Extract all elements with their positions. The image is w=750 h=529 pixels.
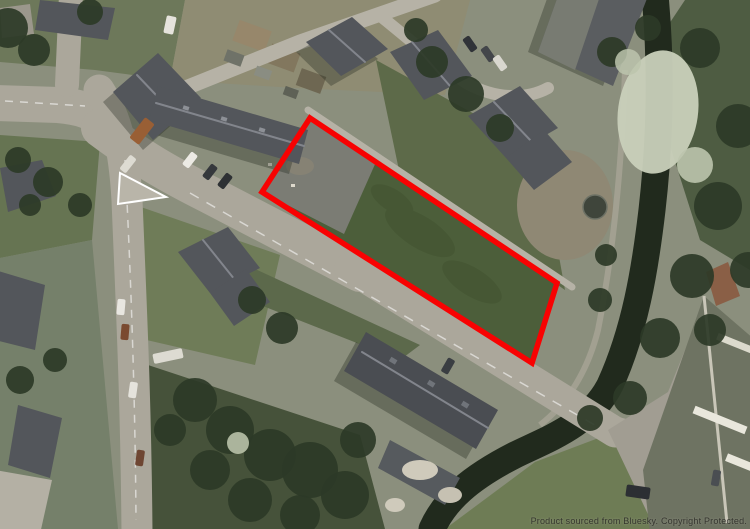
tree	[173, 378, 217, 422]
tree	[486, 114, 514, 142]
tree	[640, 318, 680, 358]
blossom-tree	[677, 147, 713, 183]
tree	[404, 18, 428, 42]
tree	[18, 34, 50, 66]
tree	[448, 76, 484, 112]
tree	[77, 0, 103, 25]
tree	[670, 254, 714, 298]
blossom-tree	[615, 49, 641, 75]
tree	[694, 314, 726, 346]
tree	[321, 471, 369, 519]
tree	[416, 46, 448, 78]
watermark-text: Product sourced from Bluesky. Copyright …	[531, 516, 747, 526]
tree	[613, 381, 647, 415]
demolition-rubble	[438, 487, 462, 503]
tree	[340, 422, 376, 458]
tree	[43, 348, 67, 372]
blossom-tree	[227, 432, 249, 454]
tree	[6, 366, 34, 394]
aerial-photo	[0, 0, 750, 529]
tree	[577, 405, 603, 431]
tree	[694, 182, 742, 230]
tree	[595, 244, 617, 266]
tree	[635, 15, 661, 41]
tree	[68, 193, 92, 217]
tree	[5, 147, 31, 173]
tree	[680, 28, 720, 68]
tree	[228, 478, 272, 522]
rubble-speck	[291, 184, 295, 187]
tree	[33, 167, 63, 197]
demolition-rubble	[402, 460, 438, 480]
car	[116, 299, 125, 316]
storage-tank	[583, 195, 607, 219]
tree	[266, 312, 298, 344]
tree	[190, 450, 230, 490]
tree	[19, 194, 41, 216]
car	[120, 324, 129, 341]
demolition-rubble	[385, 498, 405, 512]
map-image: Product sourced from Bluesky. Copyright …	[0, 0, 750, 529]
tree	[238, 286, 266, 314]
tree	[588, 288, 612, 312]
tree	[154, 414, 186, 446]
